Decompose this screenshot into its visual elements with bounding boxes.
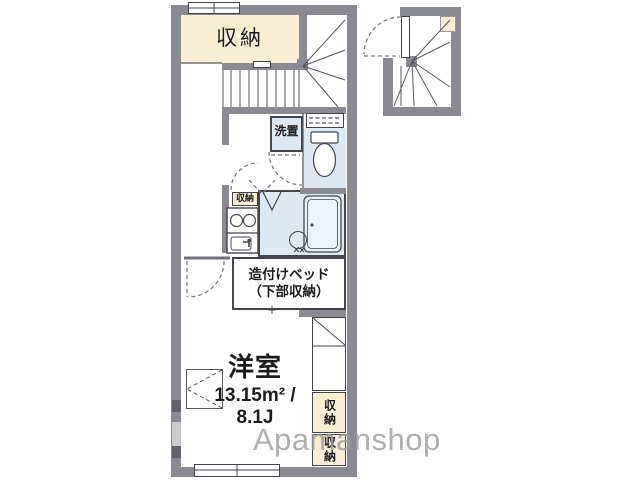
kitchen-storage-label: 収納	[232, 192, 258, 206]
utility-column-box	[312, 317, 346, 391]
mini-plan-bottom-wall	[383, 107, 461, 116]
wall	[222, 185, 229, 253]
apamanshop-watermark: Apamanshop	[253, 422, 441, 458]
window-top	[188, 2, 240, 14]
wall	[300, 188, 346, 194]
entrance-door-leaf	[401, 16, 410, 58]
window-toilet	[306, 113, 344, 128]
wall-pier	[172, 400, 181, 412]
room-area-label: 13.15m² /	[195, 385, 315, 407]
room-name-label: 洋室	[200, 352, 310, 382]
wall-pier	[172, 446, 181, 458]
washer-label: 洗置	[270, 116, 303, 146]
mini-plan-storage	[440, 16, 456, 32]
window-bottom	[194, 464, 280, 477]
entrance-door-arc	[364, 17, 401, 56]
wall	[222, 114, 229, 145]
wall	[299, 15, 307, 63]
floor-plan-page: { "colors": { "wall": "#8a8a92", "wall_l…	[0, 0, 640, 486]
toilet-room	[303, 128, 346, 188]
wall	[299, 310, 346, 317]
storage-room-label: 収納	[181, 15, 299, 63]
built-in-bed-label: 造付けベッド （下部収納）	[232, 262, 346, 306]
bathroom	[258, 190, 346, 257]
